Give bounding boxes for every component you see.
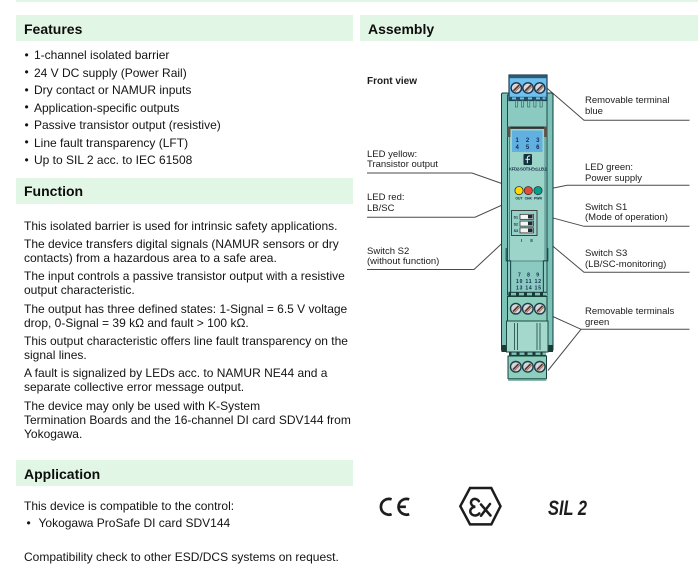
svg-text:II: II [530, 238, 532, 243]
svg-text:CHK: CHK [525, 197, 533, 201]
svg-text:10 11 12: 10 11 12 [516, 279, 541, 285]
svg-text:S2: S2 [514, 222, 518, 226]
svg-text:PWR: PWR [534, 197, 542, 201]
svg-text:KFD2-SOT3-Ex1.LB.1: KFD2-SOT3-Ex1.LB.1 [509, 167, 548, 172]
svg-text:S1: S1 [514, 216, 518, 220]
svg-text:S3: S3 [514, 229, 518, 233]
svg-text:OUT: OUT [515, 197, 523, 201]
svg-text:13 14 15: 13 14 15 [516, 286, 541, 292]
svg-text:I: I [521, 238, 522, 243]
svg-text:SIL 2: SIL 2 [548, 497, 587, 520]
